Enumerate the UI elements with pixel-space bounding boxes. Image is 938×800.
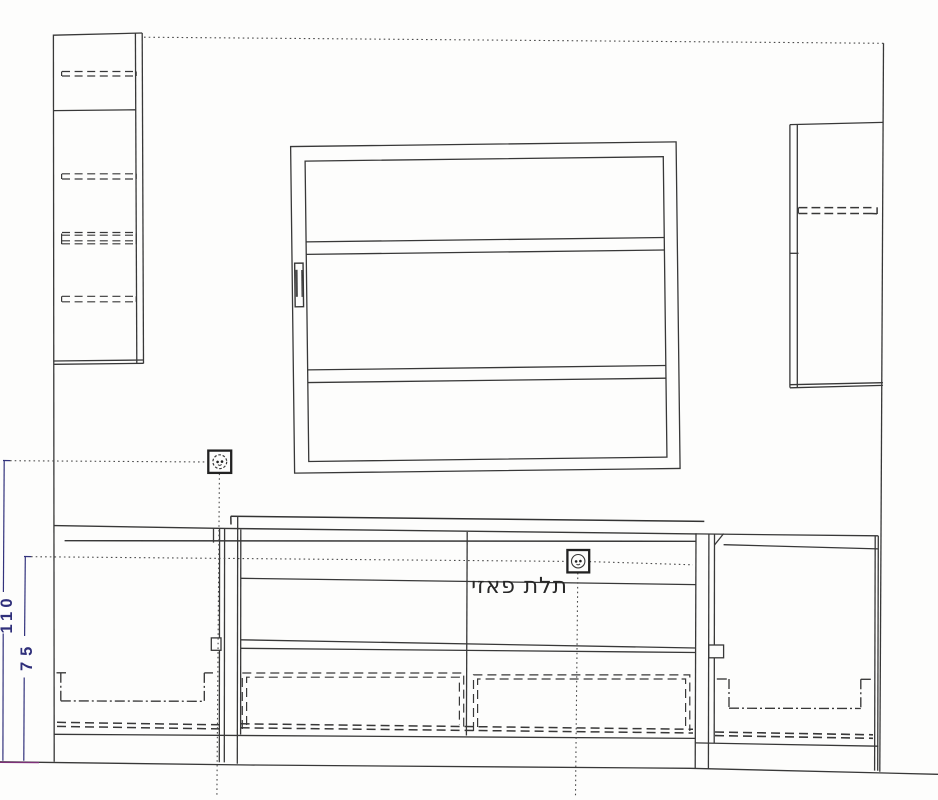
svg-text:75: 75 [18, 641, 36, 671]
svg-text:110: 110 [0, 594, 16, 633]
